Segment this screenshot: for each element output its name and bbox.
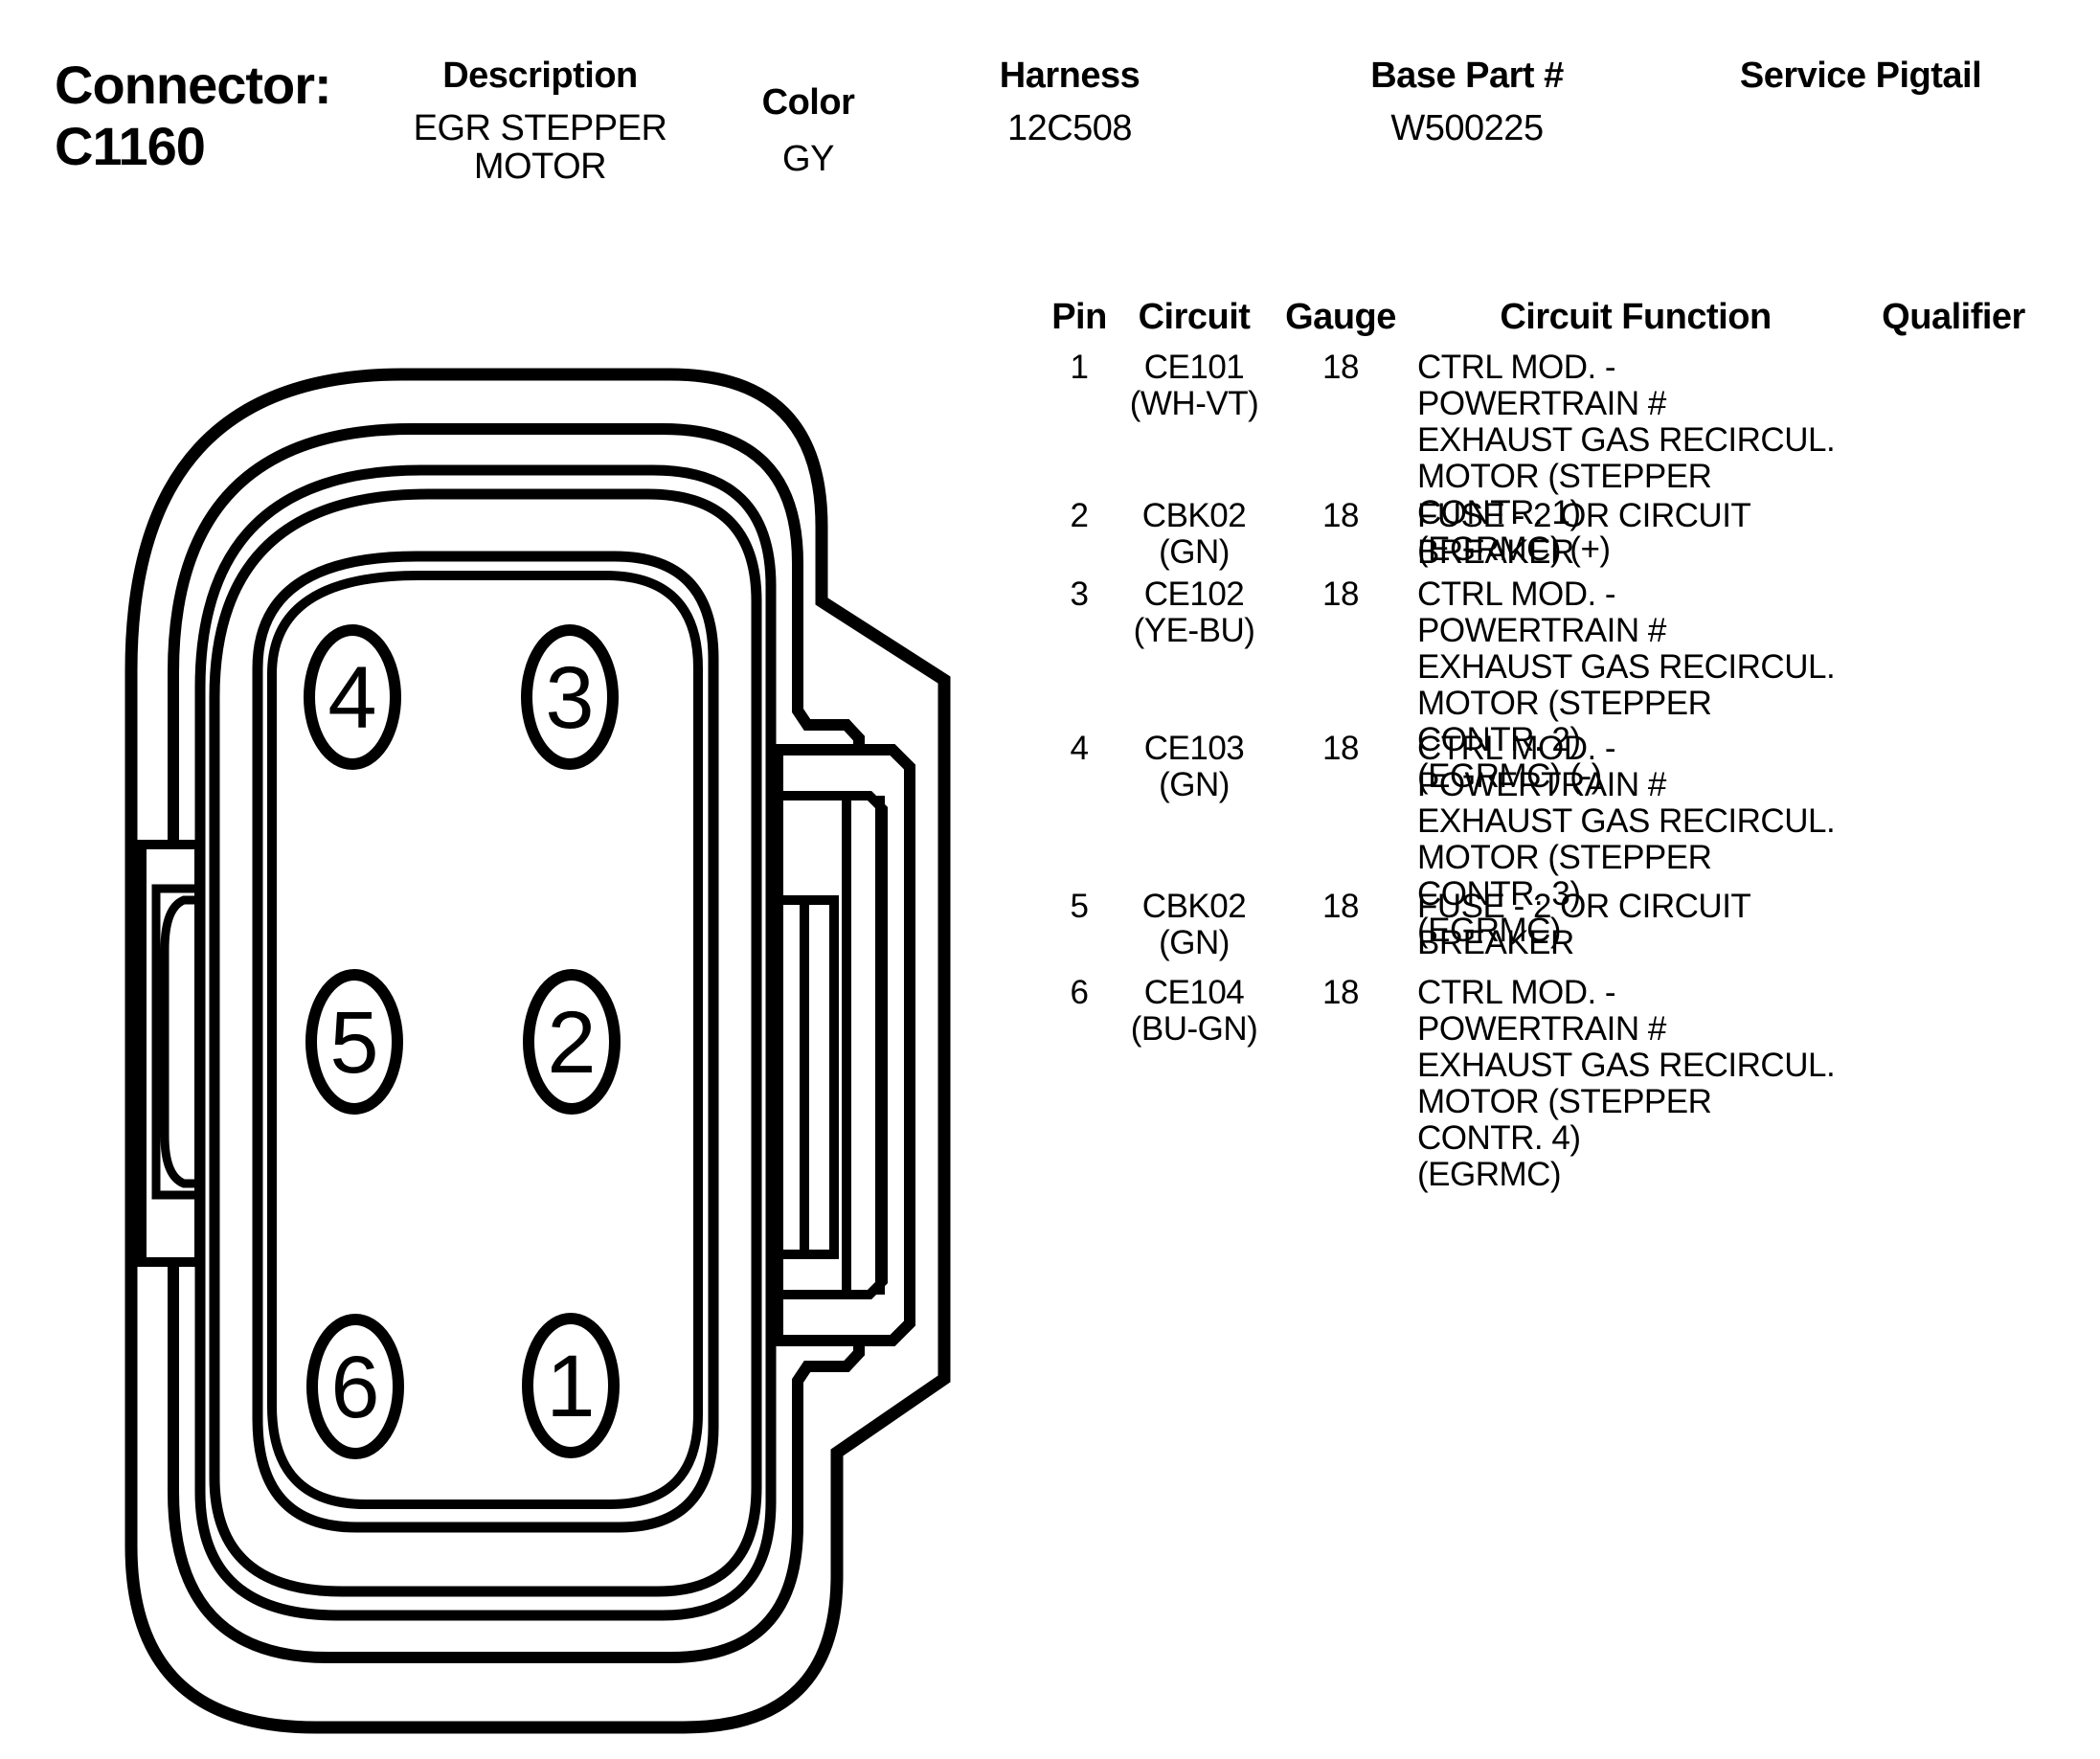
housing-outline-fourth — [215, 494, 756, 1591]
connector-spec-page: Connector: C1160 Description EGR STEPPER… — [0, 0, 2100, 1759]
pin-6-number: 6 — [330, 1339, 379, 1436]
pin-4: 4 — [309, 630, 395, 764]
pin-5: 5 — [311, 975, 397, 1109]
pin-5-number: 5 — [329, 994, 378, 1092]
pin-1-number: 1 — [546, 1338, 595, 1435]
pin-4-number: 4 — [327, 649, 376, 747]
pin-1: 1 — [528, 1319, 614, 1453]
cavity-wall-outer — [258, 556, 713, 1527]
housing-outline-third — [200, 470, 771, 1615]
pin-2: 2 — [529, 975, 615, 1109]
connector-face-diagram: 4 3 5 2 6 1 — [0, 0, 2100, 1759]
pin-2-number: 2 — [547, 994, 596, 1092]
pin-6: 6 — [312, 1319, 398, 1454]
pin-3-number: 3 — [545, 649, 594, 747]
pin-3: 3 — [527, 630, 613, 764]
